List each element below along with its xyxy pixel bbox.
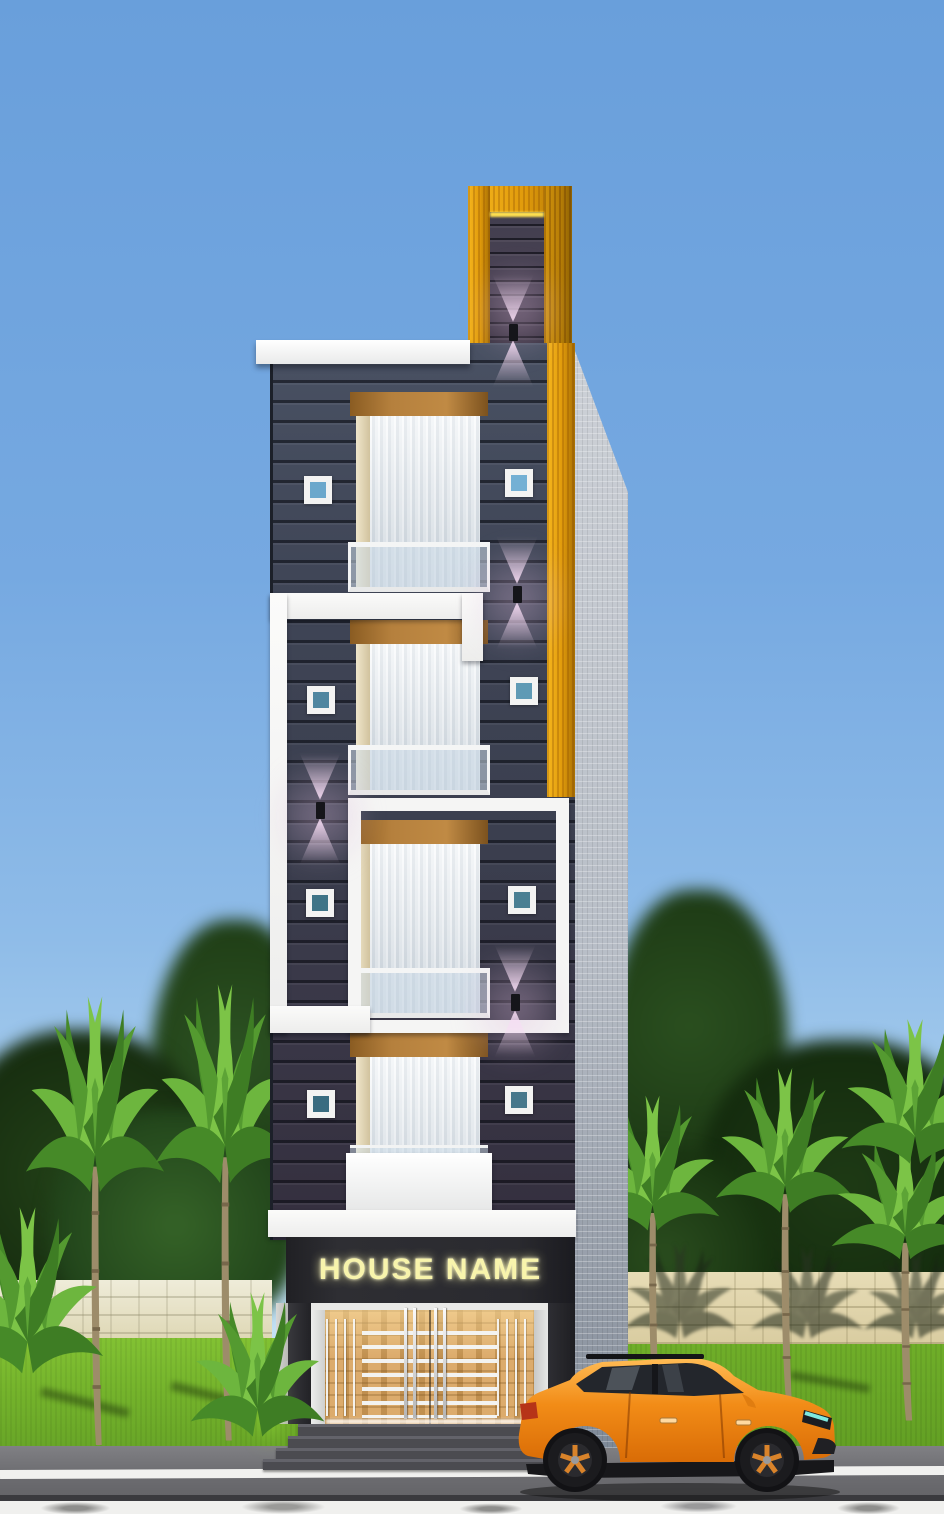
- building-side-wall: [572, 343, 628, 1448]
- door-handle: [404, 1308, 407, 1419]
- window-wood-header: [350, 1033, 488, 1057]
- balcony-solid-parapet: [346, 1153, 492, 1213]
- architectural-render: HOUSE NAME: [0, 0, 944, 1514]
- square-window: [510, 677, 538, 705]
- balcony-glass-railing: [348, 745, 490, 795]
- white-trim-band-bottom: [268, 1210, 576, 1237]
- door-handle-icon: [660, 1418, 677, 1423]
- car-b-pillar: [652, 1364, 658, 1394]
- roof-parapet: [256, 340, 470, 364]
- palm-crown: [180, 1345, 335, 1445]
- wall-light-icon: [316, 802, 325, 819]
- door-split-line: [429, 1310, 431, 1424]
- square-window: [307, 686, 335, 714]
- square-window: [307, 1090, 335, 1118]
- door-handle-icon: [736, 1420, 751, 1425]
- square-window: [505, 469, 533, 497]
- taillight-icon: [520, 1402, 538, 1420]
- palm-crown: [830, 1072, 944, 1172]
- window-floor-4: [356, 392, 482, 592]
- wall-light-icon: [511, 994, 520, 1011]
- wall-light-icon: [509, 324, 518, 341]
- white-trim-bar: [270, 1006, 370, 1033]
- window-wood-header: [350, 392, 488, 416]
- entrance-ceiling: [311, 1303, 548, 1310]
- front-wheel: [740, 1433, 794, 1487]
- balcony-glass-railing: [348, 542, 490, 592]
- door-handle: [434, 1308, 437, 1419]
- white-trim-band: [270, 593, 483, 619]
- tower-glow-line: [490, 212, 544, 217]
- wall-light-icon: [513, 586, 522, 603]
- door-handle: [443, 1308, 446, 1419]
- orange-suv: [512, 1346, 848, 1508]
- square-window: [304, 476, 332, 504]
- rear-wheel: [548, 1433, 602, 1487]
- square-window: [306, 889, 334, 917]
- house-name-sign: HOUSE NAME: [286, 1237, 575, 1303]
- sign-fascia: HOUSE NAME: [286, 1237, 575, 1303]
- window-floor-1: [356, 1033, 482, 1213]
- square-window: [508, 886, 536, 914]
- door-handle: [413, 1308, 416, 1419]
- roof-rail: [586, 1354, 704, 1359]
- palm-crown: [0, 1268, 115, 1383]
- square-window: [505, 1086, 533, 1114]
